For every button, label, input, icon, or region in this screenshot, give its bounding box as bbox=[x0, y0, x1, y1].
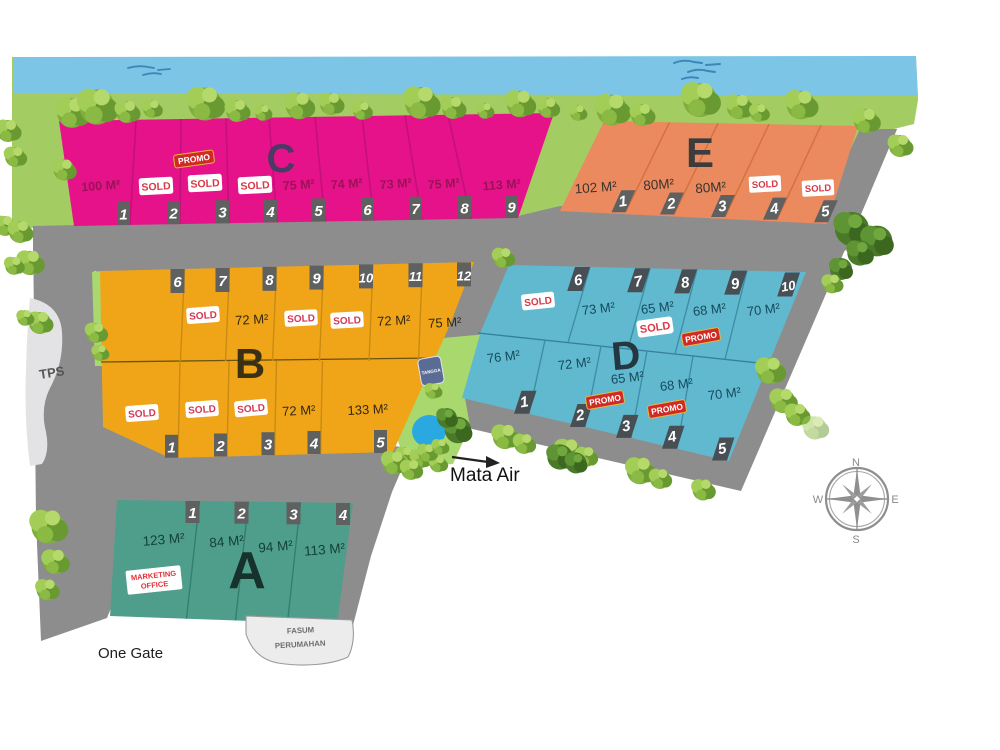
svg-text:A: A bbox=[228, 542, 266, 600]
svg-text:SOLD: SOLD bbox=[189, 310, 217, 323]
svg-text:5: 5 bbox=[376, 435, 385, 452]
svg-text:SOLD: SOLD bbox=[190, 177, 220, 191]
svg-text:D: D bbox=[610, 333, 643, 379]
svg-text:8: 8 bbox=[460, 200, 469, 217]
svg-text:SOLD: SOLD bbox=[287, 313, 315, 325]
svg-text:One Gate: One Gate bbox=[98, 645, 163, 662]
svg-text:4: 4 bbox=[265, 204, 275, 221]
svg-text:12: 12 bbox=[457, 268, 472, 283]
svg-text:SOLD: SOLD bbox=[128, 408, 156, 421]
svg-text:Mata Air: Mata Air bbox=[450, 465, 520, 486]
svg-text:80M²: 80M² bbox=[643, 176, 675, 193]
svg-text:FASUM: FASUM bbox=[287, 625, 315, 635]
svg-text:E: E bbox=[686, 129, 714, 176]
svg-text:100 M²: 100 M² bbox=[81, 178, 121, 195]
svg-text:B: B bbox=[235, 340, 265, 387]
svg-text:72 M²: 72 M² bbox=[235, 311, 270, 328]
svg-text:133 M²: 133 M² bbox=[347, 401, 389, 418]
svg-text:C: C bbox=[267, 137, 296, 181]
svg-text:6: 6 bbox=[173, 274, 182, 291]
svg-text:1: 1 bbox=[119, 207, 127, 224]
svg-text:3: 3 bbox=[218, 205, 227, 222]
svg-text:7: 7 bbox=[411, 201, 420, 218]
svg-text:7: 7 bbox=[218, 273, 227, 290]
svg-text:4: 4 bbox=[338, 507, 348, 524]
svg-text:3: 3 bbox=[264, 437, 273, 454]
svg-text:W: W bbox=[813, 494, 824, 506]
svg-text:1: 1 bbox=[167, 439, 175, 456]
svg-text:SOLD: SOLD bbox=[752, 179, 779, 191]
svg-text:2: 2 bbox=[168, 206, 178, 223]
svg-text:75 M²: 75 M² bbox=[428, 314, 463, 331]
svg-text:72 M²: 72 M² bbox=[282, 402, 317, 419]
svg-text:5: 5 bbox=[314, 203, 323, 220]
svg-text:SOLD: SOLD bbox=[805, 183, 832, 195]
svg-text:75 M²: 75 M² bbox=[427, 176, 460, 192]
svg-text:102 M²: 102 M² bbox=[574, 179, 617, 197]
svg-text:73 M²: 73 M² bbox=[379, 176, 412, 192]
svg-text:1: 1 bbox=[188, 505, 196, 522]
svg-text:10: 10 bbox=[359, 270, 374, 285]
svg-text:113 M²: 113 M² bbox=[482, 177, 521, 194]
svg-text:9: 9 bbox=[312, 271, 321, 288]
svg-text:3: 3 bbox=[289, 506, 298, 523]
svg-text:11: 11 bbox=[409, 269, 423, 284]
svg-text:8: 8 bbox=[265, 272, 274, 289]
svg-text:9: 9 bbox=[507, 200, 516, 217]
svg-text:SOLD: SOLD bbox=[333, 315, 361, 327]
svg-text:E: E bbox=[891, 494, 898, 506]
svg-text:S: S bbox=[852, 534, 859, 546]
svg-text:2: 2 bbox=[236, 506, 246, 523]
svg-text:SOLD: SOLD bbox=[141, 180, 171, 194]
svg-text:74 M²: 74 M² bbox=[330, 176, 363, 192]
svg-text:N: N bbox=[852, 457, 860, 469]
svg-text:2: 2 bbox=[215, 438, 225, 455]
svg-text:SOLD: SOLD bbox=[240, 179, 270, 193]
svg-text:6: 6 bbox=[363, 202, 372, 219]
svg-text:4: 4 bbox=[309, 436, 319, 453]
svg-text:SOLD: SOLD bbox=[188, 404, 216, 417]
svg-text:72 M²: 72 M² bbox=[377, 312, 412, 329]
svg-text:80M²: 80M² bbox=[695, 179, 727, 196]
